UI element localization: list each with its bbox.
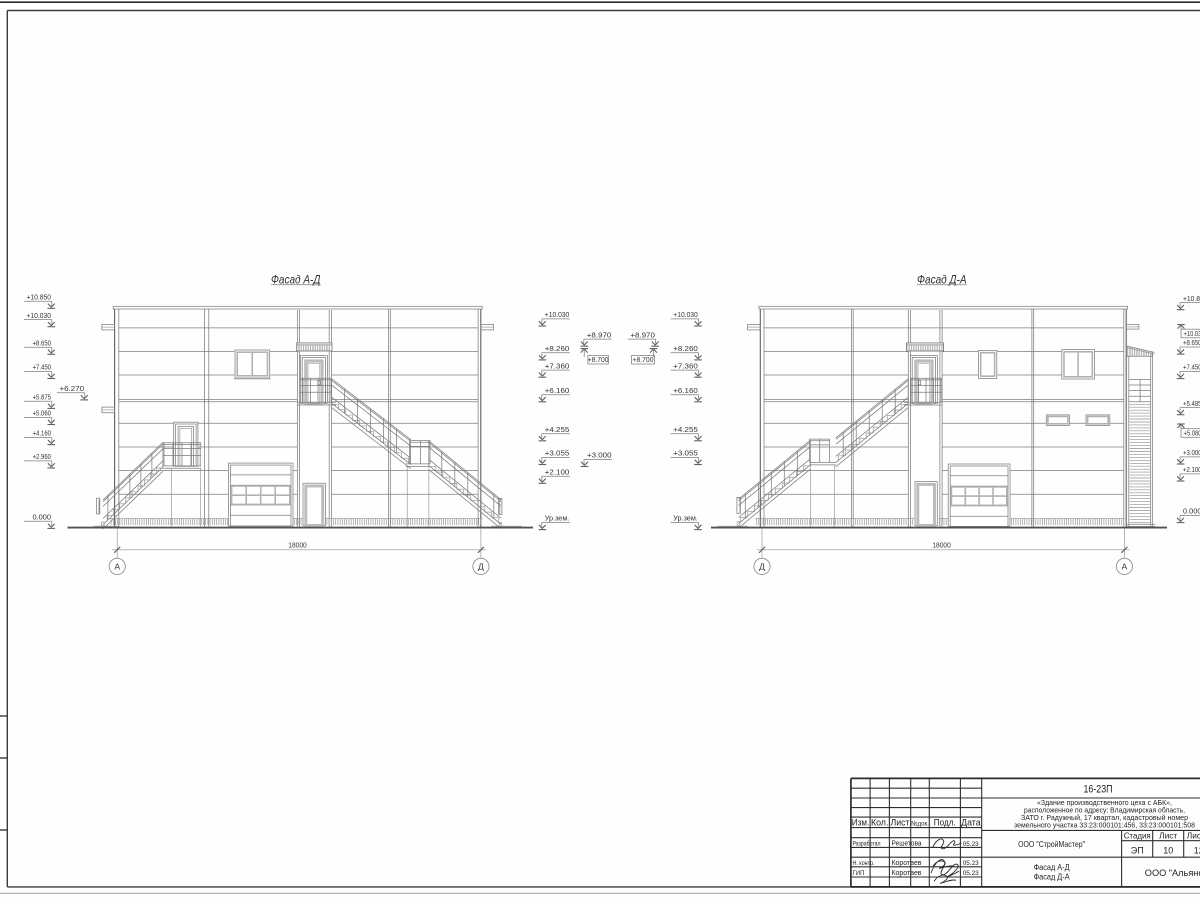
svg-text:ООО "СтройМастер": ООО "СтройМастер" <box>1018 840 1085 849</box>
svg-text:0.000: 0.000 <box>1183 507 1200 516</box>
svg-text:+2.100: +2.100 <box>545 467 570 476</box>
svg-text:+5.060: +5.060 <box>33 409 52 418</box>
svg-text:+2.960: +2.960 <box>33 452 52 461</box>
svg-text:земельного участка 33:23:00010: земельного участка 33:23:000101:456, 33:… <box>1014 821 1195 830</box>
svg-text:Фасад Д-А: Фасад Д-А <box>917 272 967 286</box>
svg-text:16-23П: 16-23П <box>1084 784 1113 796</box>
svg-text:+3.055: +3.055 <box>673 449 698 458</box>
svg-text:+10.030: +10.030 <box>545 310 570 319</box>
svg-text:+5.080: +5.080 <box>1184 428 1200 437</box>
svg-text:+2.100: +2.100 <box>1183 465 1200 474</box>
svg-text:+4.255: +4.255 <box>545 425 570 434</box>
svg-text:+10.030: +10.030 <box>1184 329 1200 338</box>
svg-text:Д: Д <box>478 562 484 572</box>
svg-text:Подл.: Подл. <box>934 818 956 828</box>
svg-text:А: А <box>114 562 120 572</box>
svg-text:+5.485: +5.485 <box>1183 399 1200 408</box>
svg-text:+4.255: +4.255 <box>673 425 698 434</box>
svg-text:Н. контр.: Н. контр. <box>853 860 875 867</box>
svg-text:Коротаев: Коротаев <box>892 860 922 867</box>
svg-text:18000: 18000 <box>932 540 951 549</box>
svg-text:+8.650: +8.650 <box>33 338 52 347</box>
svg-text:Изм.: Изм. <box>852 818 870 828</box>
svg-text:+4.160: +4.160 <box>33 429 52 438</box>
svg-text:№док.: №док. <box>911 821 929 828</box>
svg-text:10: 10 <box>1163 846 1173 856</box>
svg-text:Ур.зем.: Ур.зем. <box>673 514 698 523</box>
svg-text:+8.700: +8.700 <box>588 355 609 364</box>
svg-text:Листов: Листов <box>1187 832 1200 841</box>
svg-text:+7.450: +7.450 <box>1183 363 1200 372</box>
svg-text:12: 12 <box>1194 846 1200 856</box>
svg-text:+6.270: +6.270 <box>60 384 85 393</box>
svg-text:Д: Д <box>759 562 765 572</box>
svg-text:+8.650: +8.650 <box>1183 338 1200 347</box>
svg-text:ГИП: ГИП <box>853 870 865 877</box>
svg-text:+7.360: +7.360 <box>545 361 570 370</box>
svg-text:+10.030: +10.030 <box>27 311 52 320</box>
svg-text:Лист: Лист <box>891 818 911 828</box>
svg-text:+3.000: +3.000 <box>1183 448 1200 457</box>
svg-text:+6.160: +6.160 <box>545 386 570 395</box>
svg-text:+6.160: +6.160 <box>673 386 698 395</box>
svg-text:Фасад Д-А: Фасад Д-А <box>1034 873 1071 882</box>
svg-text:Стадия: Стадия <box>1124 832 1151 841</box>
svg-text:+8.970: +8.970 <box>587 330 612 339</box>
svg-text:+8.970: +8.970 <box>630 330 655 339</box>
svg-text:Ур.зем.: Ур.зем. <box>545 514 570 523</box>
svg-text:Кол.: Кол. <box>871 818 889 828</box>
svg-text:05.23: 05.23 <box>963 860 979 867</box>
svg-text:ЭП: ЭП <box>1131 846 1144 856</box>
svg-text:Дата: Дата <box>961 818 981 828</box>
svg-text:+3.055: +3.055 <box>545 449 570 458</box>
svg-text:+10.850: +10.850 <box>1183 294 1200 303</box>
svg-text:0.000: 0.000 <box>33 513 52 522</box>
svg-text:ООО "Альянс-Проект": ООО "Альянс-Проект" <box>1145 868 1200 878</box>
svg-text:+7.360: +7.360 <box>673 361 698 370</box>
svg-text:Коротаев: Коротаев <box>892 870 922 877</box>
svg-text:+8.260: +8.260 <box>673 344 698 353</box>
svg-text:18000: 18000 <box>288 540 307 549</box>
svg-text:+8.260: +8.260 <box>545 344 570 353</box>
svg-text:+5.875: +5.875 <box>33 393 52 402</box>
svg-text:+3.000: +3.000 <box>587 451 612 460</box>
svg-text:Решетова: Решетова <box>892 841 922 848</box>
svg-text:+10.030: +10.030 <box>673 310 698 319</box>
svg-text:+7.450: +7.450 <box>33 363 52 372</box>
svg-text:+8.700: +8.700 <box>633 355 654 364</box>
svg-text:Фасад А-Д: Фасад А-Д <box>271 272 321 286</box>
svg-text:+10.850: +10.850 <box>27 292 52 301</box>
svg-text:Фасад А-Д: Фасад А-Д <box>1034 863 1071 872</box>
svg-text:А: А <box>1122 562 1128 572</box>
svg-text:Лист: Лист <box>1159 832 1177 841</box>
svg-text:Разработал: Разработал <box>853 840 881 848</box>
svg-text:05.23: 05.23 <box>963 870 979 877</box>
svg-text:05.23: 05.23 <box>963 841 979 848</box>
